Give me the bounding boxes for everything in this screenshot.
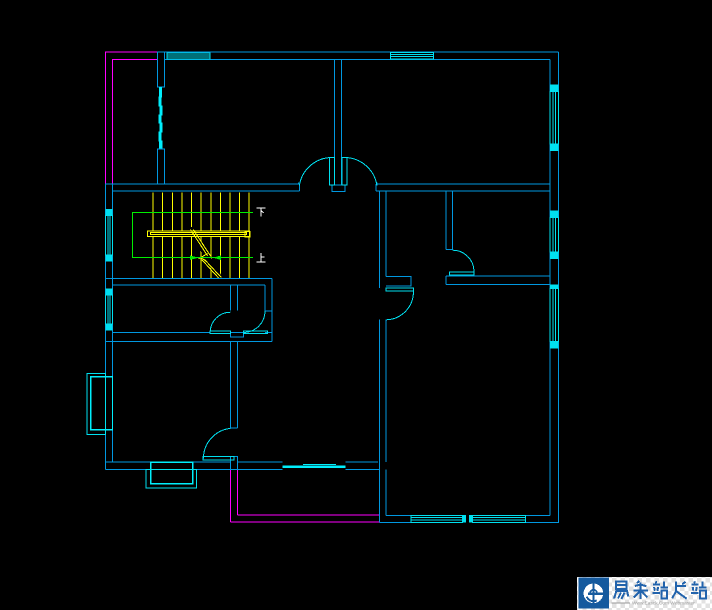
svg-text:Www.Easck.Com Webmaster: Www.Easck.Com Webmaster <box>632 601 695 607</box>
